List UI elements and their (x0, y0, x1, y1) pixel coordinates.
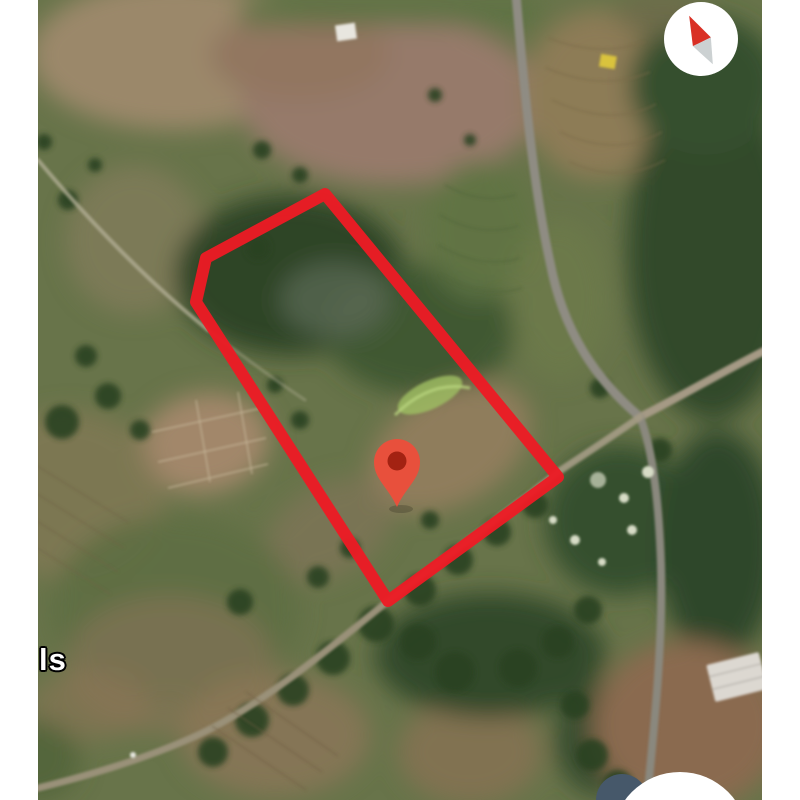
screenshot-root: ls (0, 0, 800, 800)
pin-inner-dot (388, 452, 407, 471)
map-canvas (38, 0, 762, 800)
compass-button[interactable] (664, 2, 738, 76)
right-whitespace (762, 0, 800, 800)
left-whitespace (0, 0, 38, 800)
pin-shadow (389, 505, 413, 513)
satellite-map[interactable]: ls (38, 0, 762, 800)
map-cutoff-label: ls (39, 644, 67, 675)
